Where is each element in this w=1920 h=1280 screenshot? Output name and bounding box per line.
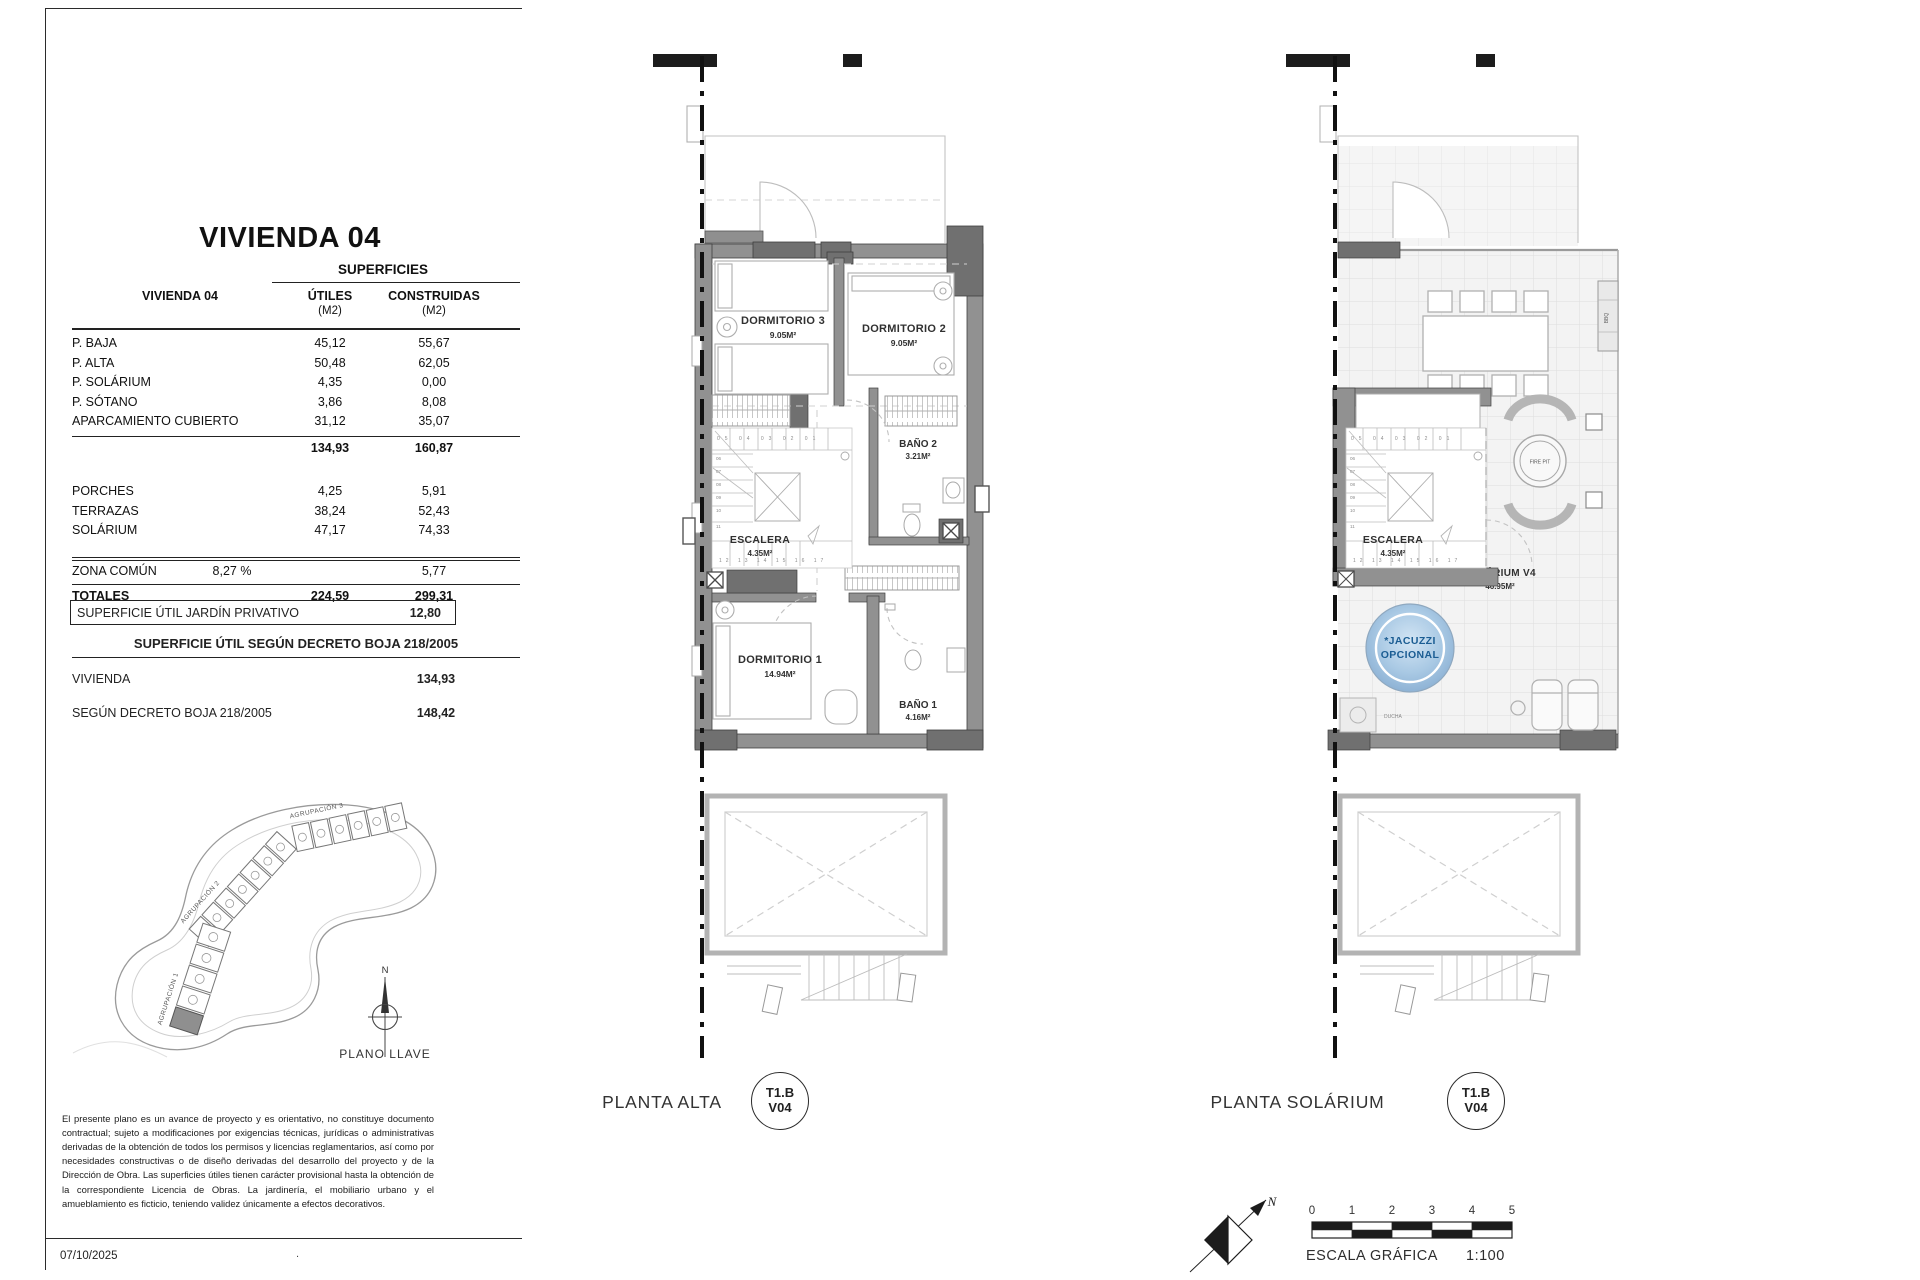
staircase: 05 04 03 02 01 06 07 08 09 10 11 12 13 1…: [712, 428, 852, 568]
floorplan-planta-alta: DORMITORIO 3 9.05M² DORMITORIO 2 9.05M² …: [555, 48, 1035, 1063]
decreto-underline: [72, 657, 520, 658]
svg-text:10: 10: [1350, 508, 1356, 513]
jardin-privativo-box: SUPERFICIE ÚTIL JARDÍN PRIVATIVO 12,80: [70, 600, 456, 625]
compass-north-label: N: [1267, 1194, 1278, 1209]
room-label-dorm3: DORMITORIO 3: [741, 315, 825, 327]
stray-dot: .: [296, 1248, 299, 1260]
plan-solarium-badge: T1.BV04: [1447, 1072, 1505, 1130]
scale-label: ESCALA GRÁFICA: [1306, 1247, 1438, 1264]
lower-terrace: [707, 796, 945, 1014]
table-row: APARCAMIENTO CUBIERTO31,1235,07: [72, 414, 520, 433]
dorm3-furniture: [715, 261, 828, 394]
stair-steps-bottom: 12 13 14 15 16 17: [1353, 558, 1461, 564]
north-compass: N: [1180, 1190, 1280, 1280]
plan-alta-badge: T1.BV04: [751, 1072, 809, 1130]
table-subtotal-row: 134,93160,87: [72, 441, 520, 460]
keyplan-north-label: N: [382, 965, 389, 976]
neighbor-strip: [687, 106, 945, 243]
plan-solarium-caption: PLANTA SOLÁRIUM: [1185, 1092, 1410, 1113]
svg-text:06: 06: [1350, 456, 1356, 461]
table-row: SOLÁRIUM47,1774,33: [72, 523, 520, 542]
svg-text:1: 1: [1349, 1205, 1355, 1217]
keyplan-north-compass: N: [368, 965, 402, 1057]
ducha-label: DUCHA: [1384, 714, 1402, 720]
room-area-dorm1: 14.94M²: [764, 669, 795, 679]
scale-bar: [1312, 1222, 1512, 1238]
key-plan: AGRUPACIÓN 3 AGRUPACIÓN 2 AGRUPACIÓN 1: [55, 765, 485, 1065]
cluster-agrupacion-2: AGRUPACIÓN 2: [178, 822, 296, 947]
lower-terrace: [1340, 796, 1578, 1014]
svg-text:2: 2: [1389, 1205, 1395, 1217]
section-marker: [653, 54, 717, 67]
room-label-bano2: BAÑO 2: [899, 437, 937, 450]
stair-steps-bottom: 12 13 14 15 16 17: [719, 558, 827, 564]
table-row: P. ALTA50,4862,05: [72, 356, 520, 375]
room-label-escalera: ESCALERA: [730, 534, 790, 546]
stair-steps-top: 05 04 03 02 01: [717, 436, 820, 442]
col-header-vivienda: VIVIENDA 04: [92, 288, 268, 304]
table-row: TERRAZAS38,2452,43: [72, 504, 520, 523]
section-marker: [1476, 54, 1495, 67]
table-row: P. SÓTANO3,868,08: [72, 395, 520, 414]
room-label-dorm1: DORMITORIO 1: [738, 654, 822, 666]
svg-text:08: 08: [1350, 482, 1356, 487]
svg-text:11: 11: [1350, 524, 1355, 529]
decreto-row: VIVIENDA 134,93: [72, 672, 520, 692]
table-row: P. BAJA45,1255,67: [72, 336, 520, 355]
room-label-escalera: ESCALERA: [1363, 534, 1423, 546]
plan-alta-caption: PLANTA ALTA: [577, 1092, 747, 1113]
jacuzzi-label-1: *JACUZZI: [1384, 635, 1436, 647]
graphic-scale: 0 1 2 3 4 5 ESCALA GRÁFICA 1:100: [1298, 1200, 1534, 1270]
room-area-bano2: 3.21M²: [906, 452, 931, 461]
contour-line: [73, 1042, 167, 1057]
svg-text:08: 08: [716, 482, 722, 487]
room-area-dorm3: 9.05M²: [770, 330, 797, 340]
svg-text:09: 09: [1350, 495, 1356, 500]
frame-top-border: [45, 8, 522, 9]
svg-text:11: 11: [716, 524, 721, 529]
bbq-counter: BBQ: [1598, 281, 1618, 351]
page-title: VIVIENDA 04: [95, 222, 485, 255]
zona-comun-row: ZONA COMÚN 8,27 % 5,77: [72, 564, 520, 583]
decreto-header: SUPERFICIE ÚTIL SEGÚN DECRETO BOJA 218/2…: [72, 636, 520, 651]
svg-text:10: 10: [716, 508, 722, 513]
drawing-sheet: VIVIENDA 04 SUPERFICIES VIVIENDA 04 ÚTIL…: [0, 0, 1920, 1280]
stair-shaft-box: [1338, 571, 1354, 587]
floorplan-planta-solarium: BBQ FIRE PIT SOLÁRIUM V4 46.95M²: [1188, 48, 1668, 1063]
table-group-header: SUPERFICIES: [268, 262, 498, 277]
scale-ratio: 1:100: [1466, 1248, 1505, 1264]
bbq-label: BBQ: [1604, 313, 1610, 324]
keyplan-title: PLANO LLAVE: [339, 1047, 430, 1061]
cluster-agrupacion-1: AGRUPACIÓN 1: [155, 919, 231, 1037]
frame-left-border: [45, 8, 46, 1270]
room-area-dorm2: 9.05M²: [891, 338, 918, 348]
svg-text:4: 4: [1469, 1205, 1476, 1217]
svg-text:06: 06: [716, 456, 722, 461]
svg-text:3: 3: [1429, 1205, 1435, 1217]
room-area-escalera: 4.35M²: [748, 549, 773, 558]
room-area-bano1: 4.16M²: [906, 713, 931, 722]
svg-text:5: 5: [1509, 1205, 1515, 1217]
bano1-fixtures: [885, 604, 965, 672]
section-marker: [1286, 54, 1350, 67]
firepit-label: FIRE PIT: [1530, 460, 1551, 466]
room-label-dorm2: DORMITORIO 2: [862, 323, 946, 335]
svg-text:07: 07: [716, 469, 722, 474]
date-stamp: 07/10/2025: [60, 1250, 118, 1262]
decreto-row: SEGÚN DECRETO BOJA 218/2005 148,42: [72, 706, 520, 726]
room-area-escalera: 4.35M²: [1381, 549, 1406, 558]
jacuzzi-label-2: OPCIONAL: [1381, 649, 1440, 661]
svg-text:07: 07: [1350, 469, 1356, 474]
svg-text:09: 09: [716, 495, 722, 500]
room-label-bano1: BAÑO 1: [899, 698, 937, 711]
section-marker: [843, 54, 862, 67]
jacuzzi: *JACUZZI OPCIONAL: [1366, 604, 1454, 692]
col-header-construidas: CONSTRUIDAS (M2): [370, 288, 498, 319]
table-row: P. SOLÁRIUM4,350,00: [72, 375, 520, 394]
svg-text:0: 0: [1309, 1205, 1315, 1217]
table-row: PORCHES4,255,91: [72, 484, 520, 503]
frame-bottom-border: [45, 1238, 522, 1239]
stair-steps-top: 05 04 03 02 01: [1351, 436, 1454, 442]
neighbor-strip: [1320, 106, 1578, 246]
disclaimer-text: El presente plano es un avance de proyec…: [62, 1112, 434, 1211]
